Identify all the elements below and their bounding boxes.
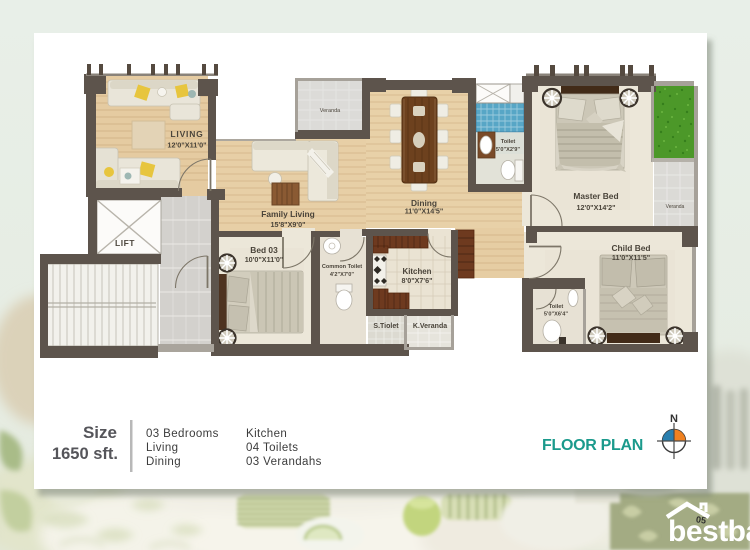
svg-text:12'0"X11'0": 12'0"X11'0" — [167, 141, 206, 150]
svg-text:LIVING: LIVING — [170, 129, 203, 139]
svg-text:Veranda: Veranda — [320, 108, 341, 114]
svg-text:04 Toilets: 04 Toilets — [246, 442, 298, 454]
svg-text:Bed 03: Bed 03 — [250, 245, 278, 255]
svg-text:15'8"X9'0": 15'8"X9'0" — [270, 220, 305, 229]
svg-text:10'0"X11'0": 10'0"X11'0" — [245, 255, 284, 264]
svg-text:LIFT: LIFT — [115, 238, 135, 248]
svg-text:1650 sft.: 1650 sft. — [52, 445, 118, 463]
svg-text:12'0"X14'2": 12'0"X14'2" — [576, 203, 615, 212]
svg-text:bestba: bestba — [668, 515, 750, 548]
svg-text:4'2"X7'0": 4'2"X7'0" — [330, 272, 354, 278]
svg-text:Size: Size — [83, 423, 117, 442]
svg-text:Family Living: Family Living — [261, 209, 315, 219]
svg-text:Toilet: Toilet — [549, 304, 564, 310]
svg-text:S.Tiolet: S.Tiolet — [373, 323, 399, 330]
svg-text:FLOOR PLAN: FLOOR PLAN — [542, 437, 643, 454]
svg-text:K.Veranda: K.Veranda — [413, 323, 447, 330]
svg-text:Living: Living — [146, 442, 178, 454]
svg-text:Child Bed: Child Bed — [611, 243, 650, 253]
svg-text:11'0"X11'5": 11'0"X11'5" — [612, 253, 650, 262]
svg-text:5'0"X2'9": 5'0"X2'9" — [496, 147, 520, 153]
svg-text:8'0"X7'6": 8'0"X7'6" — [401, 276, 432, 285]
svg-text:Kitchen: Kitchen — [246, 428, 287, 440]
svg-text:Veranda: Veranda — [666, 204, 685, 210]
svg-text:03 Verandahs: 03 Verandahs — [246, 456, 322, 468]
svg-text:Dining: Dining — [146, 456, 181, 468]
svg-text:Kitchen: Kitchen — [403, 267, 432, 276]
svg-text:5'0"X6'4": 5'0"X6'4" — [544, 312, 568, 318]
svg-text:Master Bed: Master Bed — [573, 191, 618, 201]
svg-text:03 Bedrooms: 03 Bedrooms — [146, 428, 219, 440]
svg-text:Toilet: Toilet — [501, 139, 516, 145]
svg-text:11'0"X14'5": 11'0"X14'5" — [405, 207, 444, 216]
svg-text:Common Toilet: Common Toilet — [322, 264, 362, 270]
